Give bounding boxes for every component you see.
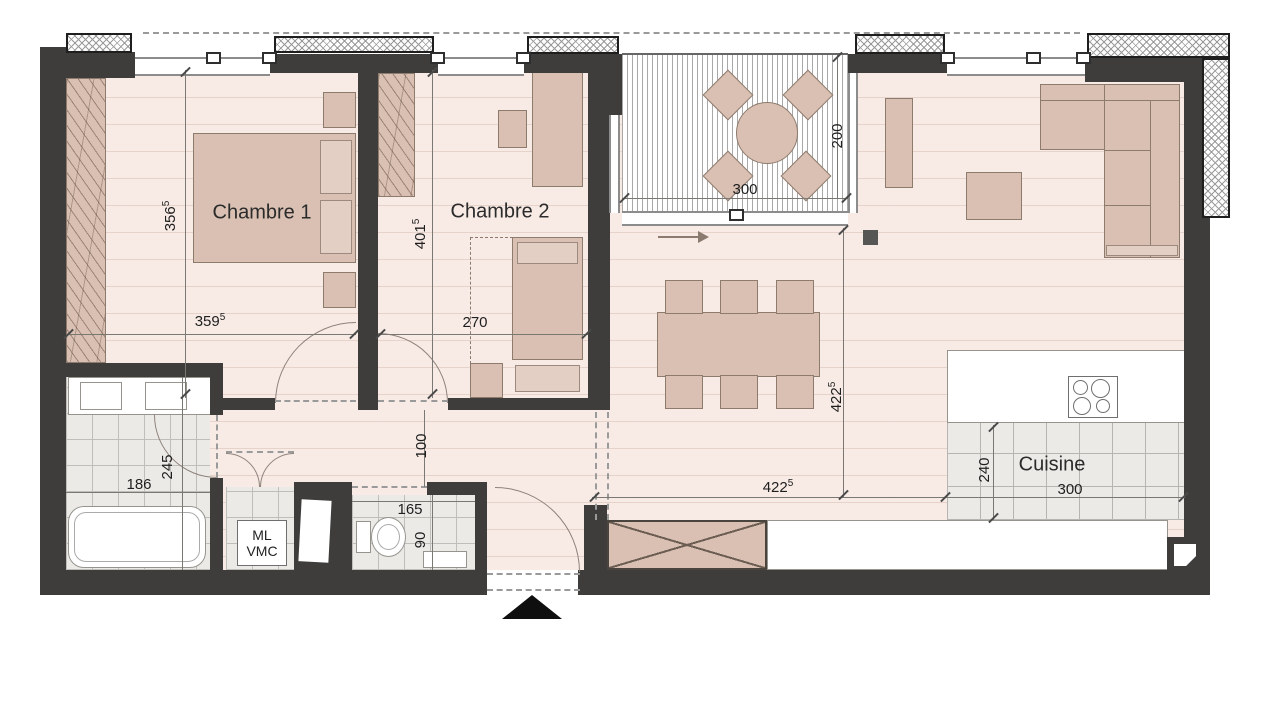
flow-arrow-head — [698, 231, 709, 243]
desk-chair — [498, 110, 527, 148]
window-mullion — [1026, 52, 1041, 64]
sofa-arm — [1106, 245, 1178, 256]
entry-wardrobe — [607, 520, 767, 570]
duct-shaft — [298, 499, 331, 562]
pillow — [320, 140, 352, 194]
insulation-hatch — [527, 36, 619, 54]
dim-line — [182, 377, 183, 570]
room-label-chambre2: Chambre 2 — [451, 201, 550, 224]
dim-cuisine-width: 300 — [1057, 480, 1082, 498]
pillow — [320, 200, 352, 254]
kitchen-counter-top — [947, 350, 1185, 423]
toilet-tank — [356, 521, 371, 553]
wall-bathroom-right-upper — [210, 363, 223, 415]
bench — [515, 365, 580, 392]
wall-wc-right — [475, 482, 487, 570]
dim-line — [378, 334, 588, 335]
wall-top-right — [848, 54, 947, 73]
dining-chair — [720, 375, 758, 409]
window-mullion — [206, 52, 221, 64]
closet-label-line1: ML — [252, 527, 271, 543]
window-mullion — [430, 52, 445, 64]
sideboard — [885, 98, 913, 188]
door-opening-chambre1 — [275, 400, 356, 402]
burner — [1096, 399, 1110, 413]
closet-opening — [226, 451, 294, 453]
window-mullion — [940, 52, 955, 64]
wall-hall-a — [223, 398, 275, 410]
sofa-seam — [1104, 205, 1150, 206]
dim-line — [993, 425, 994, 520]
insulation-hatch — [274, 36, 434, 53]
room-label-chambre1: Chambre 1 — [213, 202, 312, 225]
sofa-vertical — [1104, 84, 1180, 258]
insulation-hatch — [1202, 58, 1230, 218]
dim-cuisine-height: 240 — [975, 457, 993, 482]
technical-closet-label: ML VMC — [237, 520, 287, 566]
dim-sejour-width: 4225 — [763, 478, 794, 496]
door-opening-bathroom — [216, 415, 218, 478]
insulation-hatch — [66, 33, 132, 53]
window-chambre1 — [135, 57, 270, 76]
floor-plan: Chambre 1 Chambre 2 Cuisine 3565 3595 40… — [0, 0, 1280, 720]
dim-line — [592, 497, 1185, 498]
dim-terrasse-height: 200 — [828, 123, 846, 148]
window-mullion — [516, 52, 531, 64]
sofa-seam — [1104, 150, 1150, 151]
door-opening-wc — [352, 486, 427, 488]
terrace-table — [736, 102, 798, 164]
dim-line — [432, 495, 433, 570]
post — [863, 230, 878, 245]
entrance-arrow — [502, 595, 562, 619]
sink — [80, 382, 122, 410]
room-label-text: Chambre 2 — [451, 201, 550, 223]
wall-pier — [270, 54, 438, 73]
dim-chambre1-height: 3565 — [161, 201, 179, 232]
flow-arrow-shaft — [658, 236, 700, 238]
window-sejour — [947, 57, 1085, 76]
burner — [1073, 397, 1091, 415]
wardrobe-chambre1 — [66, 78, 106, 363]
wall-top-left — [40, 52, 135, 78]
window-mullion — [1076, 52, 1091, 64]
desk-chambre2 — [532, 72, 583, 187]
dim-sejour-height: 4225 — [827, 382, 845, 413]
burner — [1073, 380, 1088, 395]
room-label-cuisine: Cuisine — [1019, 454, 1086, 477]
wall-left — [40, 47, 66, 595]
dim-wc-height: 90 — [411, 532, 429, 549]
window-chambre2 — [438, 57, 524, 76]
burner — [1091, 379, 1110, 398]
insulation-hatch — [855, 34, 945, 54]
virtual-boundary-hall — [595, 412, 597, 520]
wall-bathroom-right-lower — [210, 478, 223, 570]
wall-chambre2-right — [588, 72, 610, 410]
wardrobe-chambre2 — [378, 73, 415, 197]
coffee-table — [966, 172, 1022, 220]
closet-label-line2: VMC — [246, 543, 277, 559]
dim-terrasse-width: 300 — [732, 180, 757, 198]
wall-partition-bedrooms — [358, 72, 378, 410]
door-opening-chambre2 — [378, 400, 448, 402]
dim-line — [66, 334, 356, 335]
toilet-bowl-inner — [377, 524, 400, 550]
wall-hall-b — [448, 398, 588, 410]
dashed-reservation — [470, 237, 513, 364]
dim-chambre1-width: 3595 — [195, 312, 226, 330]
wall-bottom-right — [578, 570, 1210, 595]
room-label-text: Chambre 1 — [213, 202, 312, 224]
roof-overhang-line — [143, 32, 1080, 34]
dining-table — [657, 312, 820, 377]
wall-wc-left — [340, 482, 352, 570]
nightstand — [323, 272, 356, 308]
room-label-text: Cuisine — [1019, 454, 1086, 476]
dining-chair — [665, 375, 703, 409]
dining-chair — [720, 280, 758, 314]
dim-chambre2-width: 270 — [462, 313, 487, 331]
dim-wc-width: 165 — [397, 500, 422, 518]
dim-bathroom-height: 245 — [158, 454, 176, 479]
dim-line — [843, 228, 844, 497]
virtual-boundary-hall — [607, 412, 609, 520]
window-side-terrace — [609, 115, 620, 213]
pillow — [517, 242, 578, 264]
window-mullion — [262, 52, 277, 64]
insulation-hatch — [1087, 33, 1230, 58]
dining-chair — [665, 280, 703, 314]
wall-bottom-left — [40, 570, 487, 595]
dining-chair — [776, 375, 814, 409]
dining-chair — [776, 280, 814, 314]
dim-line — [432, 70, 433, 398]
nightstand — [323, 92, 356, 128]
dim-hall-width: 100 — [412, 433, 430, 458]
wall-bathroom-top — [40, 363, 223, 377]
dim-line — [185, 70, 186, 398]
kitchen-counter-bottom — [767, 520, 1168, 570]
nightstand — [470, 363, 503, 398]
dim-bathroom-width: 186 — [126, 475, 151, 493]
entry-opening — [487, 573, 580, 575]
entry-opening — [487, 589, 580, 591]
window-mullion — [729, 209, 744, 221]
wc-sink — [423, 551, 467, 568]
sofa-seam — [1040, 100, 1180, 101]
dim-line — [622, 198, 848, 199]
sofa-seam — [1150, 100, 1151, 258]
dim-chambre2-height: 4015 — [411, 219, 429, 250]
